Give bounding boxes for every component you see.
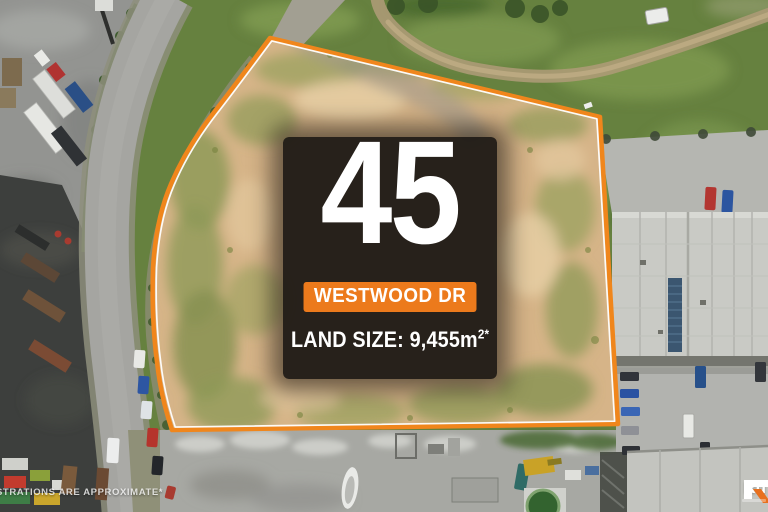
street-number: 45 <box>321 120 460 267</box>
water-tank <box>527 490 559 512</box>
container <box>452 478 498 502</box>
listing-image: 45 WESTWOOD DR LAND SIZE: 9,455m2* STRAT… <box>0 0 768 512</box>
solar-panels <box>668 278 682 352</box>
logo-tagline <box>742 499 766 502</box>
land-size-value: 9,455m <box>409 327 477 352</box>
blue-truck <box>695 366 706 388</box>
land-size-text: LAND SIZE: 9,455m2* <box>291 328 489 352</box>
agency-logo: Ru <box>743 479 768 496</box>
industrial-building-top <box>612 212 768 370</box>
land-size-label: LAND SIZE: <box>291 327 404 352</box>
white-van <box>683 414 694 438</box>
land-size-superscript: 2* <box>478 327 489 342</box>
property-info-panel: 45 WESTWOOD DR LAND SIZE: 9,455m2* <box>283 137 497 379</box>
street-name-badge: WESTWOOD DR <box>303 282 476 312</box>
disclaimer-watermark: STRATIONS ARE APPROXIMATE* <box>0 487 163 498</box>
red-car <box>704 187 716 211</box>
blue-car <box>721 190 733 214</box>
